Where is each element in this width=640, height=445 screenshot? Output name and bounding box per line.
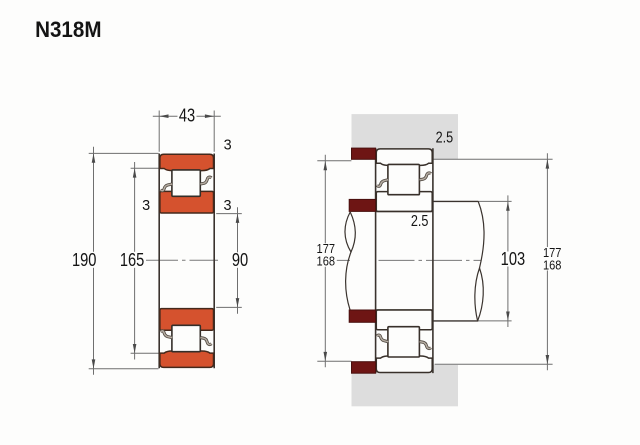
svg-text:165: 165 bbox=[120, 249, 144, 270]
svg-text:3: 3 bbox=[142, 198, 150, 214]
svg-text:103: 103 bbox=[501, 248, 525, 269]
svg-text:43: 43 bbox=[179, 105, 195, 126]
svg-text:N318M: N318M bbox=[35, 17, 101, 42]
svg-text:90: 90 bbox=[232, 249, 248, 270]
svg-text:3: 3 bbox=[224, 137, 232, 153]
svg-text:2.5: 2.5 bbox=[436, 129, 454, 147]
svg-text:168: 168 bbox=[543, 258, 562, 273]
svg-text:3: 3 bbox=[223, 198, 231, 214]
svg-text:168: 168 bbox=[317, 254, 336, 269]
svg-text:2.5: 2.5 bbox=[411, 213, 429, 231]
svg-text:190: 190 bbox=[72, 249, 96, 270]
